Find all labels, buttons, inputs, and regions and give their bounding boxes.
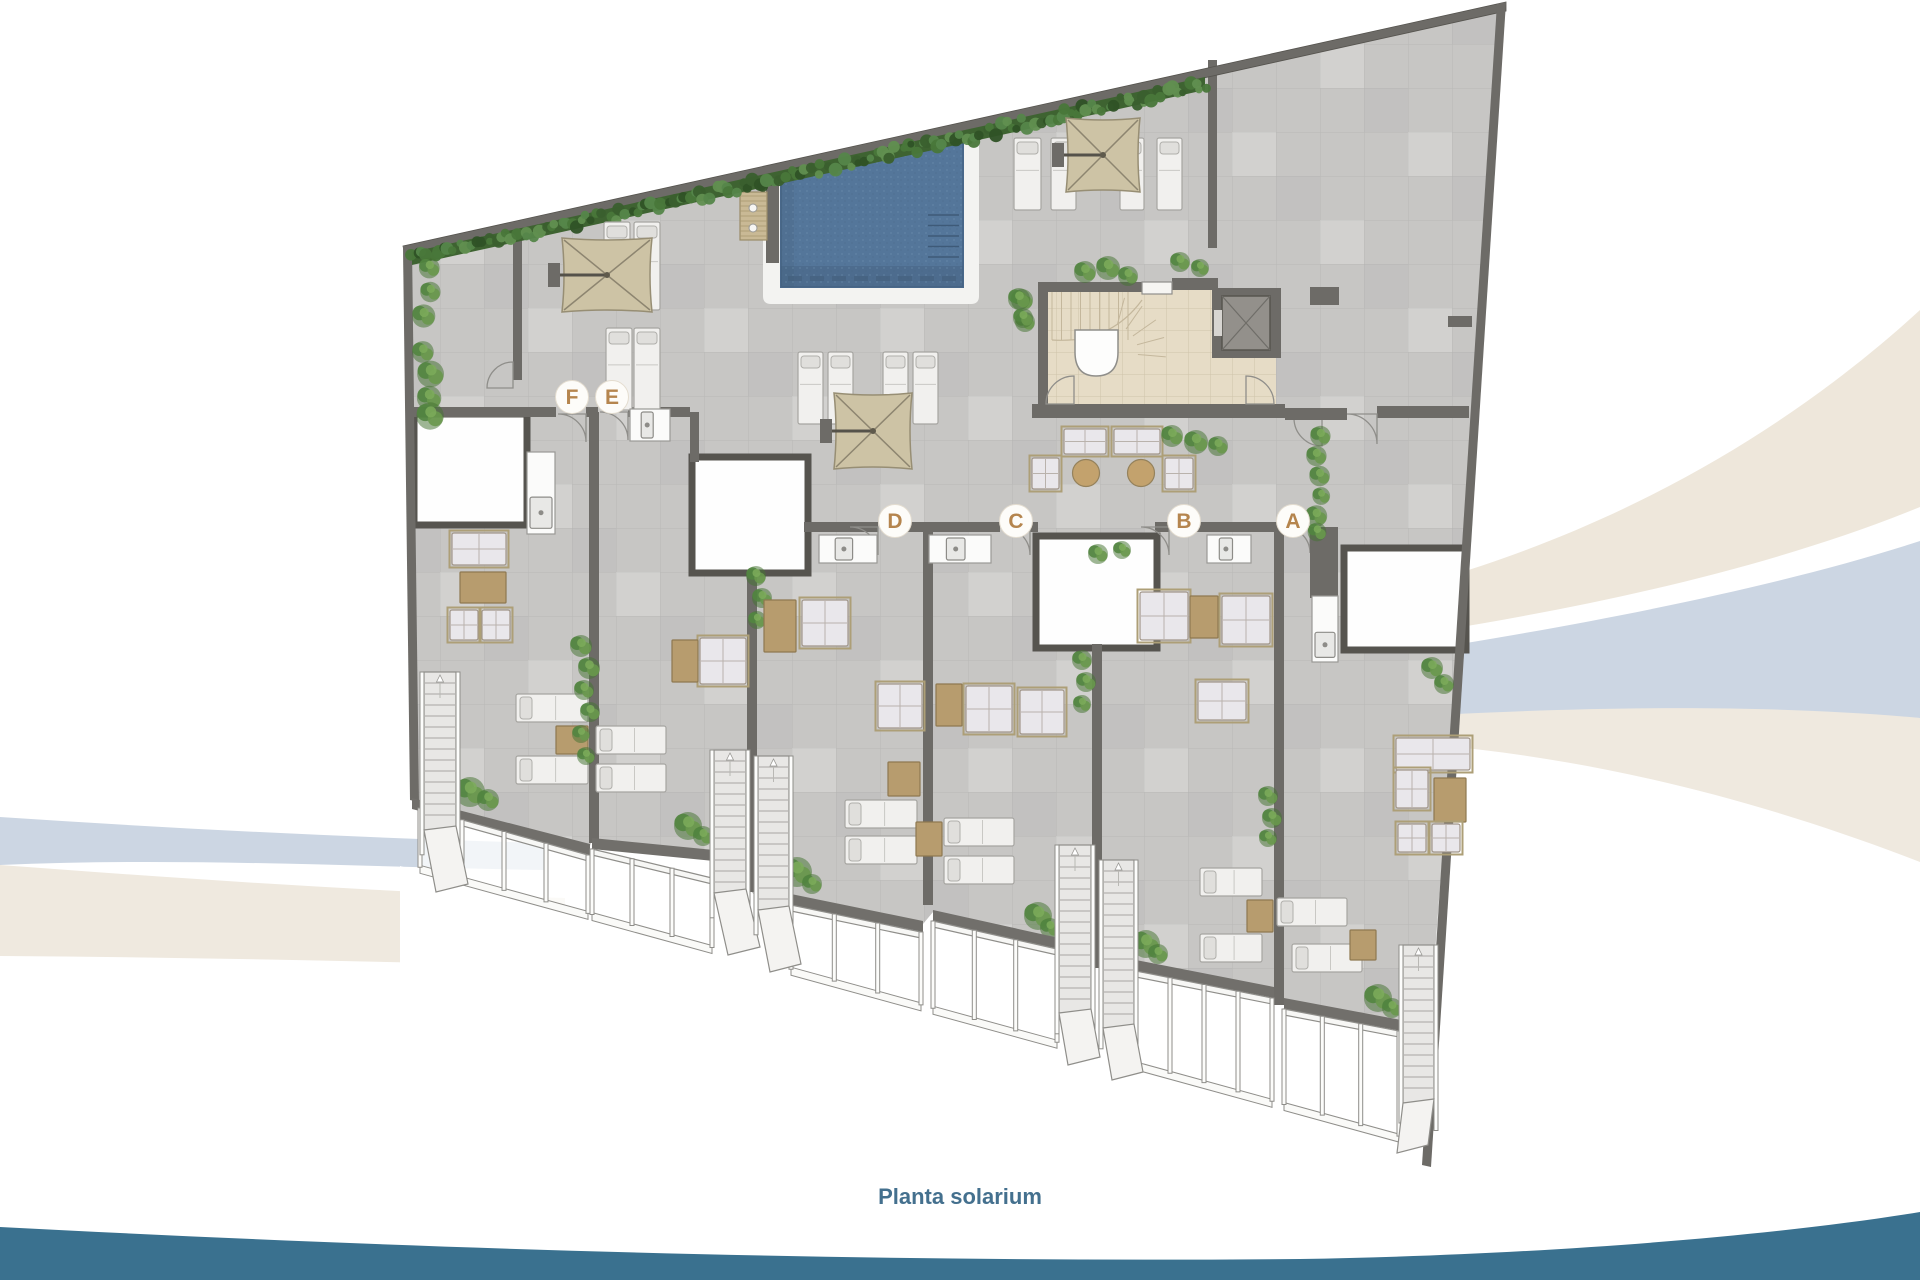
svg-text:C: C <box>1008 510 1023 533</box>
svg-text:B: B <box>1176 510 1191 533</box>
svg-text:A: A <box>1285 510 1300 533</box>
svg-text:Planta solarium: Planta solarium <box>878 1184 1042 1209</box>
svg-text:E: E <box>605 386 619 409</box>
svg-text:F: F <box>566 386 579 409</box>
svg-text:D: D <box>887 510 902 533</box>
